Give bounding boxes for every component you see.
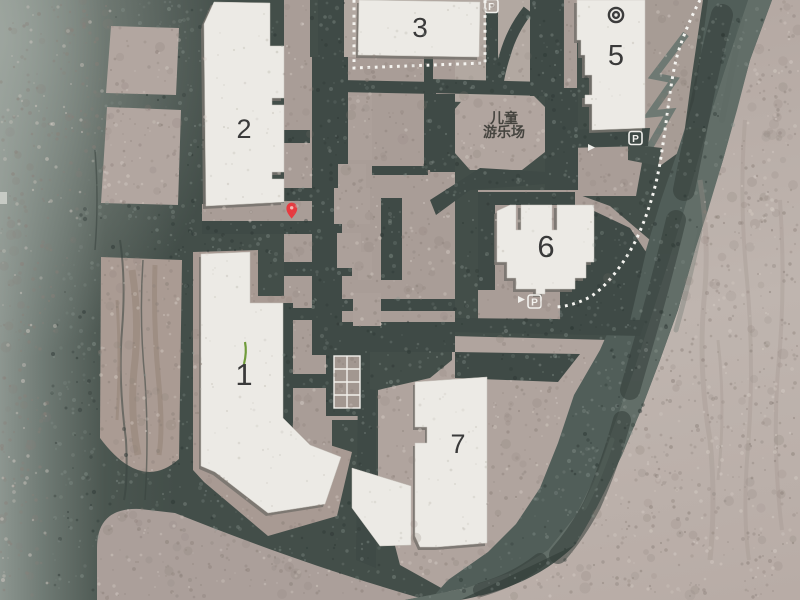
svg-text:P: P bbox=[531, 298, 538, 309]
svg-text:5: 5 bbox=[608, 40, 624, 72]
svg-text:2: 2 bbox=[236, 114, 251, 144]
svg-text:3: 3 bbox=[412, 12, 428, 43]
svg-text:7: 7 bbox=[450, 429, 465, 459]
svg-text:P: P bbox=[632, 134, 639, 145]
svg-text:6: 6 bbox=[537, 229, 554, 264]
svg-text:P: P bbox=[488, 2, 495, 13]
svg-text:游乐场: 游乐场 bbox=[483, 124, 525, 140]
